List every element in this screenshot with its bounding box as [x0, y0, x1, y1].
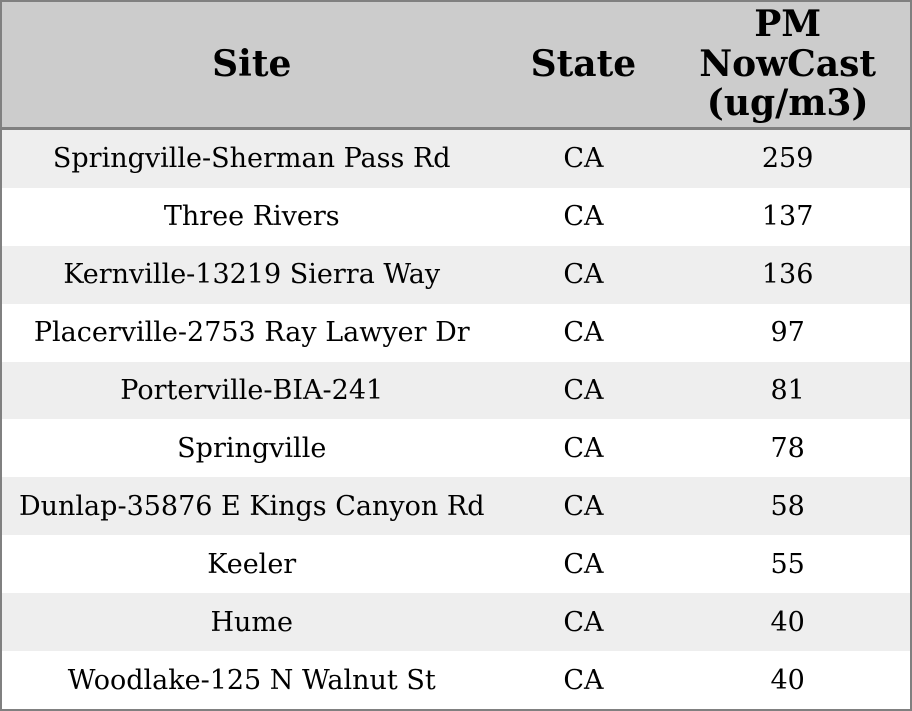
site-cell: Porterville-BIA-241 [1, 362, 502, 420]
pm-cell: 137 [665, 188, 911, 246]
table-header: Site State PM NowCast (ug/m3) [1, 1, 911, 129]
site-cell: Hume [1, 593, 502, 651]
table-row: Dunlap-35876 E Kings Canyon Rd CA 58 [1, 477, 911, 535]
pm-cell: 81 [665, 362, 911, 420]
pm-cell: 259 [665, 129, 911, 188]
pm-cell: 136 [665, 246, 911, 304]
aqi-sites-table: Site State PM NowCast (ug/m3) Springvill… [0, 0, 912, 711]
header-row: Site State PM NowCast (ug/m3) [1, 1, 911, 129]
table-body: Springville-Sherman Pass Rd CA 259 Three… [1, 129, 911, 711]
state-cell: CA [502, 362, 666, 420]
table-row: Hume CA 40 [1, 593, 911, 651]
table-row: Kernville-13219 Sierra Way CA 136 [1, 246, 911, 304]
table-row: Porterville-BIA-241 CA 81 [1, 362, 911, 420]
site-cell: Springville [1, 419, 502, 477]
state-cell: CA [502, 419, 666, 477]
state-cell: CA [502, 477, 666, 535]
pm-cell: 58 [665, 477, 911, 535]
table-row: Springville CA 78 [1, 419, 911, 477]
site-cell: Keeler [1, 535, 502, 593]
table-row: Keeler CA 55 [1, 535, 911, 593]
site-cell: Kernville-13219 Sierra Way [1, 246, 502, 304]
table-row: Woodlake-125 N Walnut St CA 40 [1, 651, 911, 710]
pm-cell: 40 [665, 593, 911, 651]
site-cell: Three Rivers [1, 188, 502, 246]
state-cell: CA [502, 304, 666, 362]
column-header-state: State [502, 1, 666, 129]
state-cell: CA [502, 593, 666, 651]
column-header-pm-nowcast: PM NowCast (ug/m3) [665, 1, 911, 129]
column-header-site: Site [1, 1, 502, 129]
aqi-table-container: Site State PM NowCast (ug/m3) Springvill… [0, 0, 912, 711]
state-cell: CA [502, 651, 666, 710]
pm-cell: 55 [665, 535, 911, 593]
site-cell: Woodlake-125 N Walnut St [1, 651, 502, 710]
state-cell: CA [502, 535, 666, 593]
state-cell: CA [502, 188, 666, 246]
pm-cell: 97 [665, 304, 911, 362]
state-cell: CA [502, 246, 666, 304]
pm-cell: 40 [665, 651, 911, 710]
site-cell: Springville-Sherman Pass Rd [1, 129, 502, 188]
state-cell: CA [502, 129, 666, 188]
table-row: Springville-Sherman Pass Rd CA 259 [1, 129, 911, 188]
site-cell: Dunlap-35876 E Kings Canyon Rd [1, 477, 502, 535]
site-cell: Placerville-2753 Ray Lawyer Dr [1, 304, 502, 362]
table-row: Placerville-2753 Ray Lawyer Dr CA 97 [1, 304, 911, 362]
pm-cell: 78 [665, 419, 911, 477]
table-row: Three Rivers CA 137 [1, 188, 911, 246]
